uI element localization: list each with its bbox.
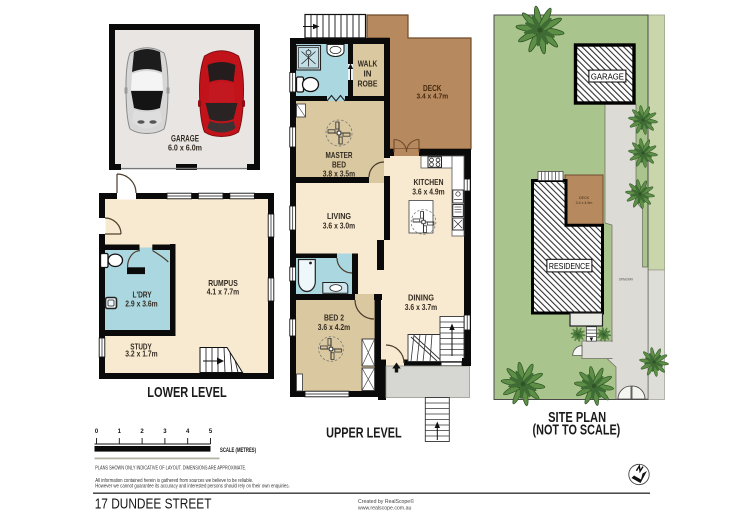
svg-text:6.0 x 6.0m: 6.0 x 6.0m	[168, 143, 202, 153]
svg-text:BED: BED	[332, 160, 346, 170]
svg-text:www.realscope.com.au: www.realscope.com.au	[358, 506, 411, 512]
svg-text:3.6 x 4.2m: 3.6 x 4.2m	[318, 323, 350, 332]
svg-text:SCALE (METRES): SCALE (METRES)	[220, 447, 256, 454]
svg-text:3.6 x 4.9m: 3.6 x 4.9m	[412, 188, 444, 197]
svg-text:3.2 x 1.7m: 3.2 x 1.7m	[125, 350, 157, 359]
svg-text:ROBE: ROBE	[358, 79, 378, 89]
svg-text:MASTER: MASTER	[326, 150, 353, 160]
svg-text:DRIVEWAY: DRIVEWAY	[619, 278, 634, 282]
svg-text:RUMPUS: RUMPUS	[208, 278, 238, 288]
svg-text:LOWER LEVEL: LOWER LEVEL	[147, 384, 226, 401]
svg-text:3.8 x 3.5m: 3.8 x 3.5m	[323, 170, 355, 179]
svg-text:(NOT TO SCALE): (NOT TO SCALE)	[533, 422, 621, 439]
svg-text:3.4 x 4.7m: 3.4 x 4.7m	[417, 92, 449, 101]
svg-text:17 DUNDEE STREET: 17 DUNDEE STREET	[95, 496, 212, 513]
svg-text:3.4 x 4.9m: 3.4 x 4.9m	[576, 201, 593, 205]
svg-text:RESIDENCE: RESIDENCE	[549, 262, 590, 271]
svg-text:4.1 x 7.7m: 4.1 x 7.7m	[207, 288, 239, 297]
svg-text:IN: IN	[364, 69, 372, 79]
svg-text:DECK: DECK	[579, 196, 590, 200]
svg-text:L'DRY: L'DRY	[133, 290, 153, 300]
svg-text:3.6 x 3.7m: 3.6 x 3.7m	[405, 303, 437, 312]
svg-text:LIVING: LIVING	[327, 211, 351, 221]
svg-text:DINING: DINING	[408, 293, 434, 303]
svg-text:PLANS SHOWN ONLY INDICATIVE OF: PLANS SHOWN ONLY INDICATIVE OF LAYOUT. D…	[95, 465, 246, 471]
svg-text:WALK: WALK	[358, 59, 378, 69]
svg-text:GARAGE: GARAGE	[591, 73, 624, 82]
svg-text:UPPER LEVEL: UPPER LEVEL	[326, 424, 402, 441]
svg-text:Created by RealScope©: Created by RealScope©	[358, 498, 414, 505]
svg-text:KITCHEN: KITCHEN	[414, 177, 444, 187]
svg-text:However we cannot guarantee it: However we cannot guarantee its accuracy…	[95, 484, 290, 490]
svg-text:3.6 x 3.0m: 3.6 x 3.0m	[323, 222, 355, 231]
svg-text:2.9 x 3.6m: 2.9 x 3.6m	[125, 299, 157, 308]
svg-text:BED 2: BED 2	[324, 313, 344, 323]
